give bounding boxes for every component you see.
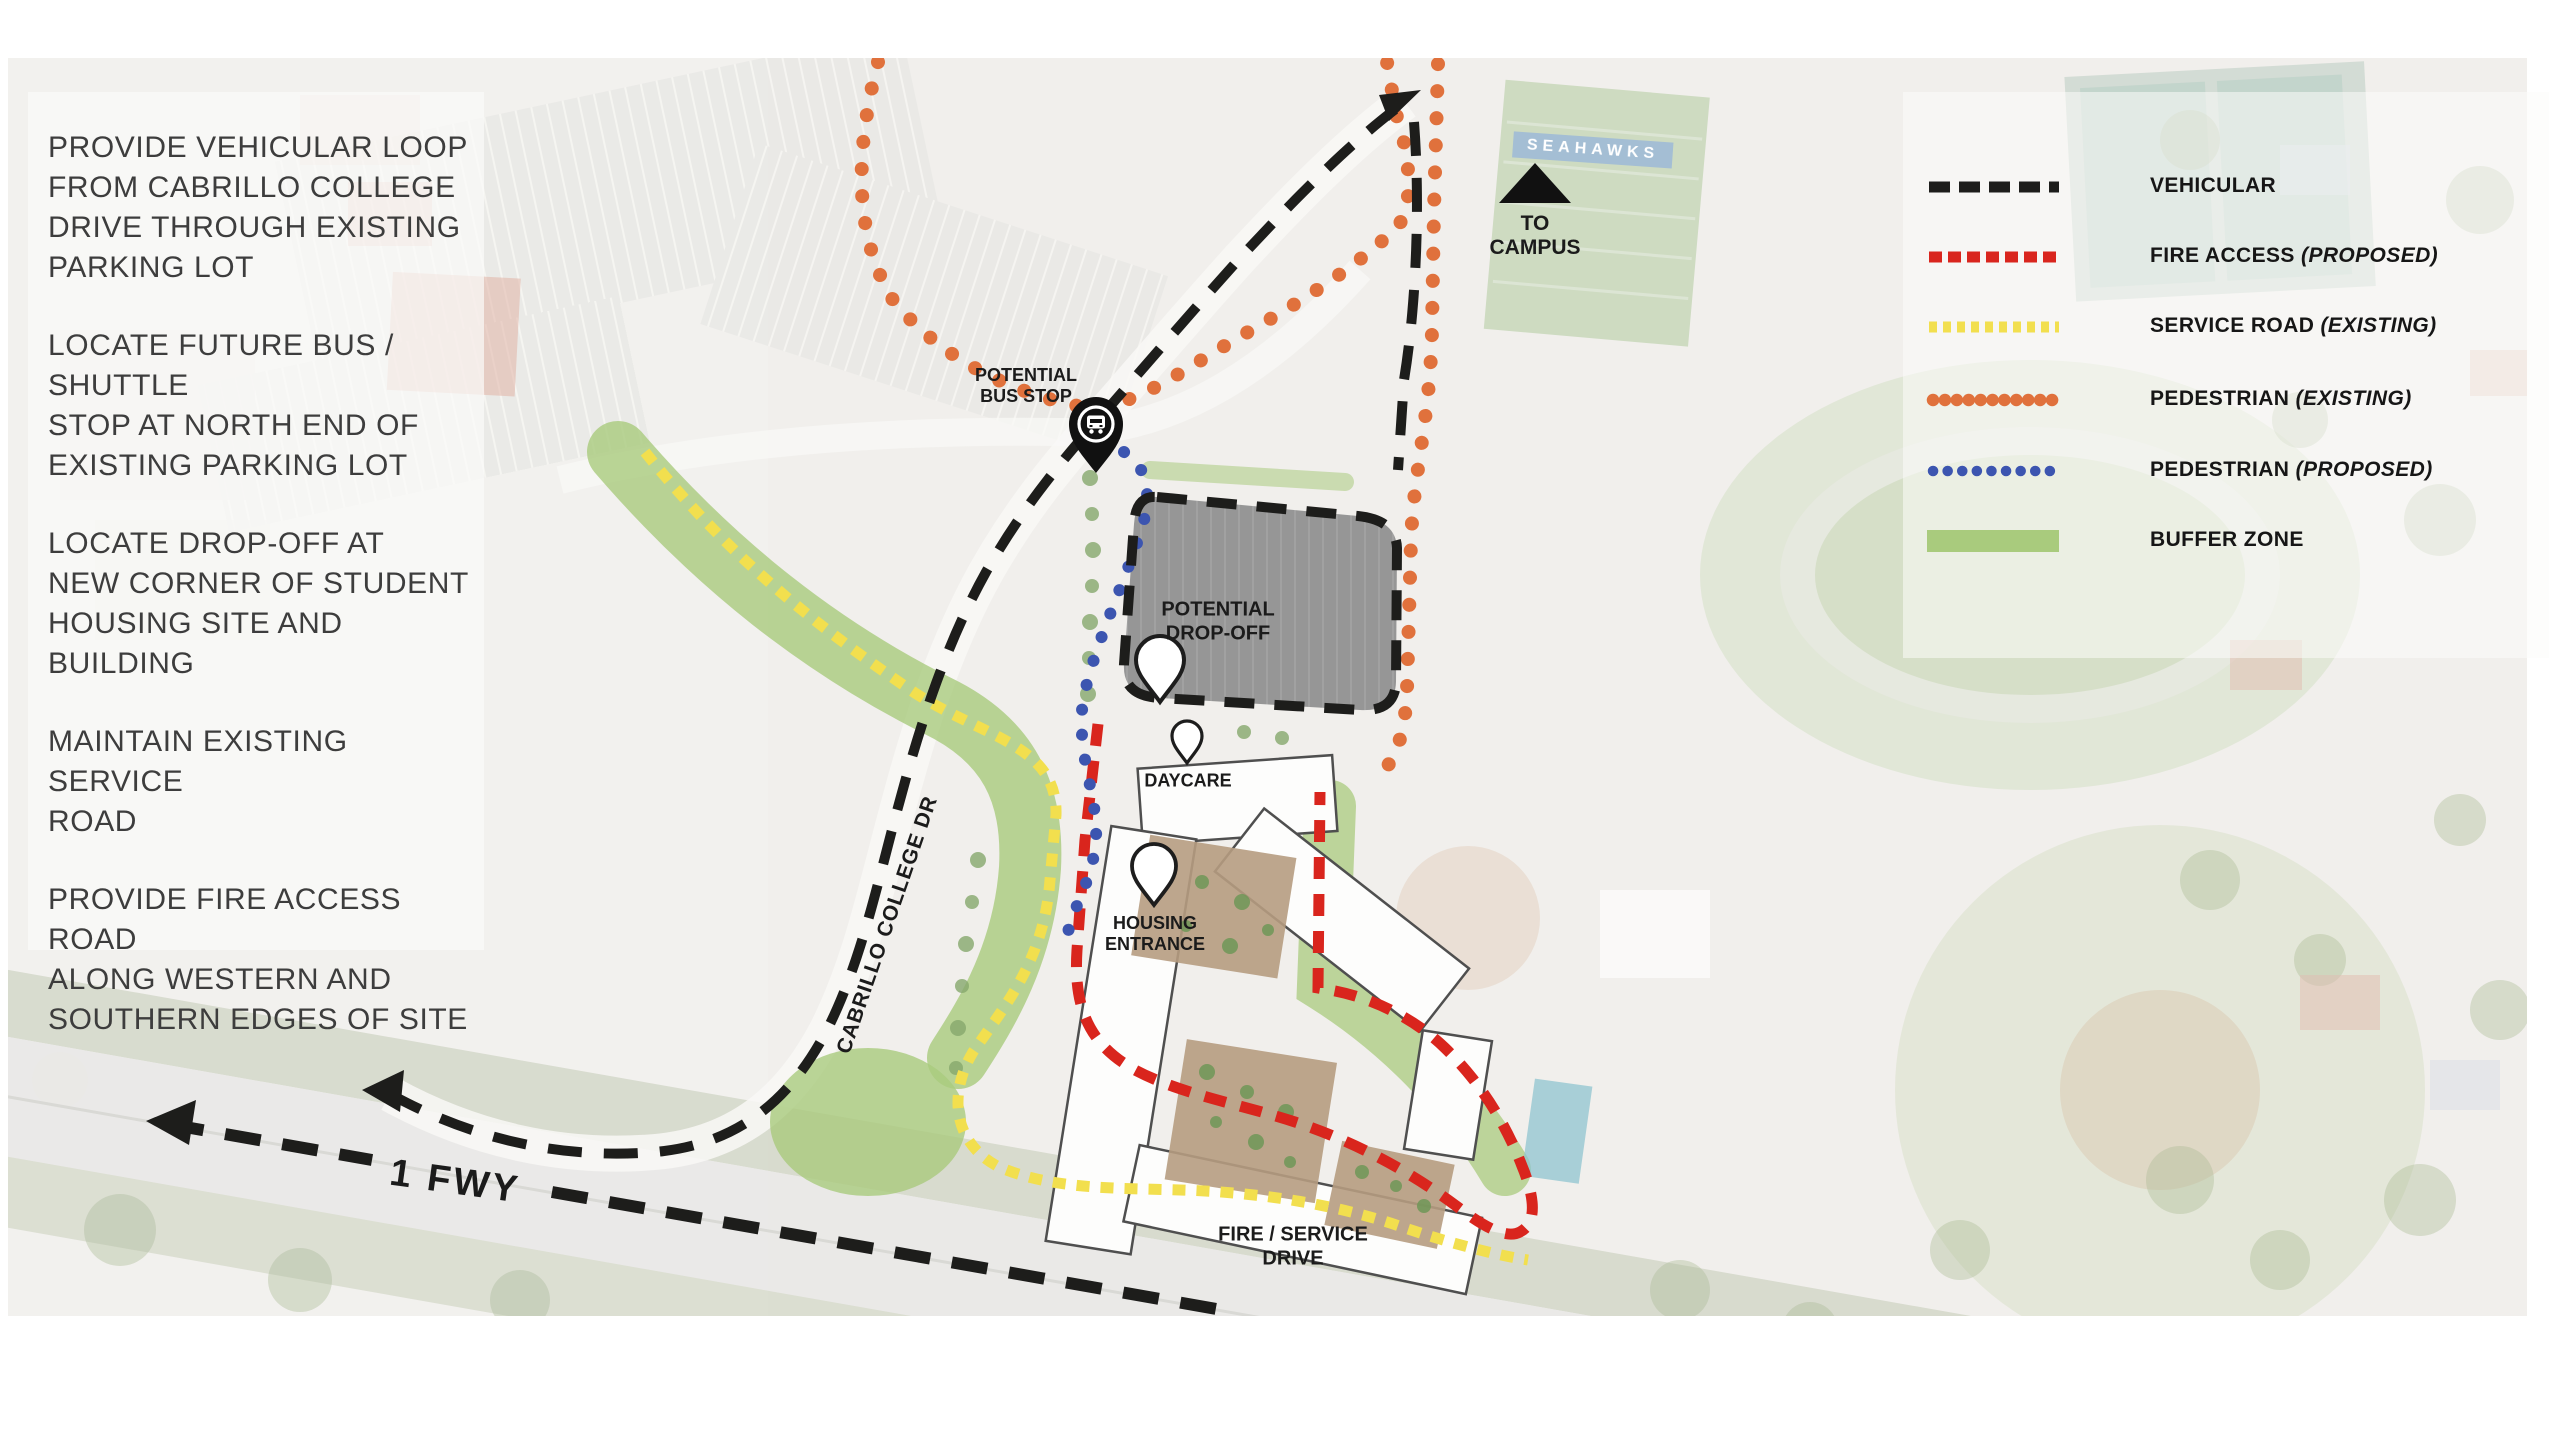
- legend-label: BUFFER ZONE: [2150, 528, 2304, 552]
- pedestrian-proposed-dots-swatch: [1925, 459, 2065, 483]
- legend-label: VEHICULAR: [2150, 174, 2276, 198]
- note-service-road: MAINTAIN EXISTING SERVICE ROAD: [48, 722, 478, 842]
- site-plan-page: PROVIDE VEHICULAR LOOP FROM CABRILLO COL…: [0, 0, 2560, 1440]
- label-daycare: DAYCARE: [1144, 770, 1231, 791]
- note-vehicular-loop: PROVIDE VEHICULAR LOOP FROM CABRILLO COL…: [48, 128, 478, 288]
- label-potential-bus-stop: POTENTIAL BUS STOP: [975, 365, 1077, 407]
- label-housing-entrance: HOUSING ENTRANCE: [1105, 913, 1205, 955]
- label-potential-drop-off: POTENTIAL DROP-OFF: [1161, 598, 1274, 645]
- buffer-zone-swatch: [1925, 529, 2065, 553]
- legend-row-service-road: SERVICE ROAD (EXISTING): [1925, 310, 2535, 344]
- buffer-zone-hill: [770, 1048, 966, 1196]
- fire-access-line-swatch: [1925, 245, 2065, 269]
- label-fire-service-drive: FIRE / SERVICE DRIVE: [1218, 1223, 1368, 1270]
- buffer-zone-north-trees: [1150, 470, 1345, 482]
- legend-label: PEDESTRIAN (PROPOSED): [2150, 458, 2433, 482]
- pedestrian-existing-dots-swatch: [1925, 388, 2065, 412]
- note-drop-off: LOCATE DROP-OFF AT NEW CORNER OF STUDENT…: [48, 524, 478, 684]
- legend-label: PEDESTRIAN (EXISTING): [2150, 387, 2412, 411]
- annotation-notes: PROVIDE VEHICULAR LOOP FROM CABRILLO COL…: [48, 128, 478, 1078]
- legend-row-fire-access: FIRE ACCESS (PROPOSED): [1925, 240, 2535, 274]
- label-to-campus: TO CAMPUS: [1489, 212, 1580, 260]
- legend-label: SERVICE ROAD (EXISTING): [2150, 314, 2437, 338]
- service-road-line-swatch: [1925, 315, 2065, 339]
- legend-label: FIRE ACCESS (PROPOSED): [2150, 244, 2438, 268]
- legend-row-vehicular: VEHICULAR: [1925, 170, 2535, 204]
- note-bus-shuttle: LOCATE FUTURE BUS / SHUTTLE STOP AT NORT…: [48, 326, 478, 486]
- vehicular-line-swatch: [1925, 175, 2065, 199]
- legend-row-buffer-zone: BUFFER ZONE: [1925, 524, 2535, 558]
- legend-row-pedestrian-existing: PEDESTRIAN (EXISTING): [1925, 383, 2535, 417]
- legend-row-pedestrian-proposed: PEDESTRIAN (PROPOSED): [1925, 454, 2535, 488]
- note-fire-access: PROVIDE FIRE ACCESS ROAD ALONG WESTERN A…: [48, 880, 478, 1040]
